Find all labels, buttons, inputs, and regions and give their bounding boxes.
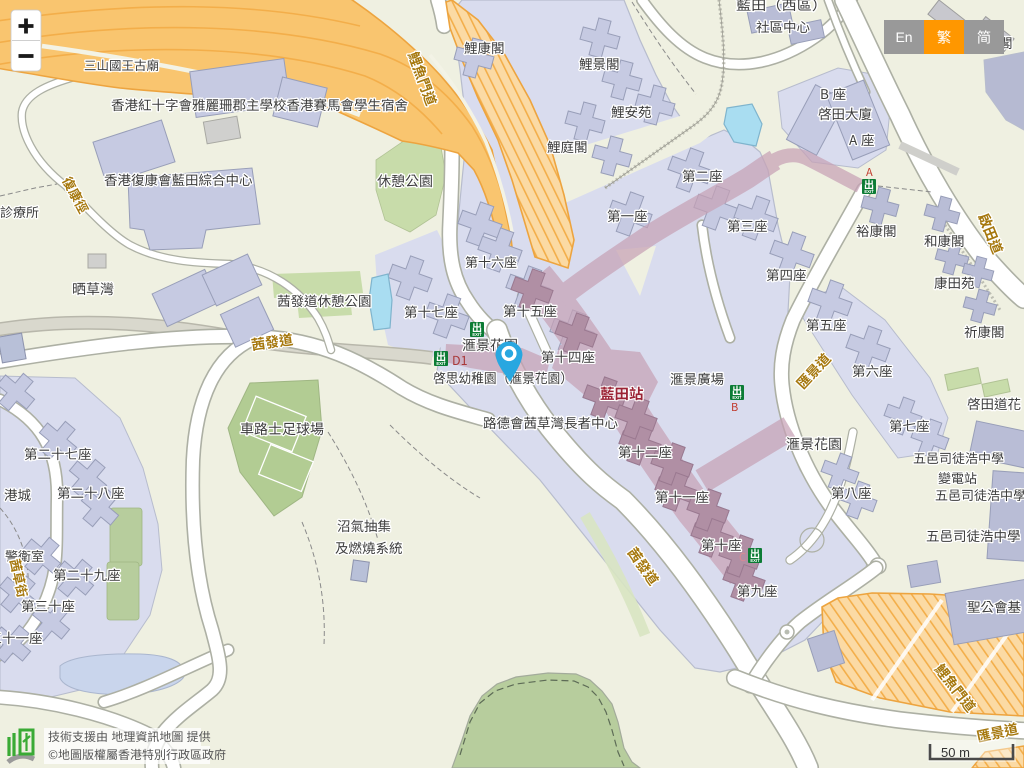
svg-text:藍田站: 藍田站 xyxy=(600,383,644,404)
svg-text:香港紅十字會雅麗珊郡主學校香港賽馬會學生宿舍: 香港紅十字會雅麗珊郡主學校香港賽馬會學生宿舍 xyxy=(111,94,408,114)
svg-text:第四座: 第四座 xyxy=(766,264,807,284)
svg-text:車路士足球場: 車路士足球場 xyxy=(240,419,324,439)
svg-text:和康閣: 和康閣 xyxy=(924,230,965,250)
svg-text:啓田道花: 啓田道花 xyxy=(967,393,1021,413)
svg-text:港城: 港城 xyxy=(4,484,31,504)
svg-text:EXIT: EXIT xyxy=(472,332,482,337)
svg-text:五邑司徒浩中學: 五邑司徒浩中學 xyxy=(935,485,1024,504)
svg-text:A 座: A 座 xyxy=(849,129,874,149)
svg-text:B 座: B 座 xyxy=(820,83,846,103)
svg-text:康田苑: 康田苑 xyxy=(934,272,975,292)
svg-text:第十一座: 第十一座 xyxy=(655,486,709,506)
svg-text:休憩公園: 休憩公園 xyxy=(377,171,433,191)
svg-text:©地圖版權屬香港特別行政區政府: ©地圖版權屬香港特別行政區政府 xyxy=(48,746,226,763)
svg-text:香港復康會藍田綜合中心: 香港復康會藍田綜合中心 xyxy=(104,169,253,189)
svg-text:第八座: 第八座 xyxy=(831,482,872,502)
svg-text:第一座: 第一座 xyxy=(607,205,648,225)
svg-text:診療所: 診療所 xyxy=(0,202,39,221)
svg-text:第十六座: 第十六座 xyxy=(465,252,517,271)
svg-text:藍田（西區）: 藍田（西區） xyxy=(736,0,827,14)
svg-text:A: A xyxy=(866,164,873,180)
svg-text:D1: D1 xyxy=(452,350,468,369)
svg-text:祈康閣: 祈康閣 xyxy=(964,321,1005,341)
svg-text:第二十八座: 第二十八座 xyxy=(57,482,125,502)
svg-text:三山國王古廟: 三山國王古廟 xyxy=(84,55,159,74)
svg-text:啓田大廈: 啓田大廈 xyxy=(818,103,872,123)
svg-text:鯉景閣: 鯉景閣 xyxy=(579,53,620,73)
svg-text:第十四座: 第十四座 xyxy=(541,346,595,366)
svg-text:五邑司徒浩中學: 五邑司徒浩中學 xyxy=(913,448,1004,467)
svg-text:繁: 繁 xyxy=(937,27,952,48)
svg-text:第六座: 第六座 xyxy=(852,360,893,380)
svg-text:裕康閣: 裕康閣 xyxy=(856,220,897,240)
svg-text:五邑司徒浩中學: 五邑司徒浩中學 xyxy=(926,525,1021,545)
svg-text:En: En xyxy=(895,29,912,45)
svg-text:第十七座: 第十七座 xyxy=(404,301,458,321)
svg-text:第二十七座: 第二十七座 xyxy=(24,443,92,463)
svg-text:鯉安苑: 鯉安苑 xyxy=(611,101,652,121)
svg-text:第九座: 第九座 xyxy=(737,580,778,600)
svg-text:鯉庭閣: 鯉庭閣 xyxy=(547,136,588,156)
svg-text:晒草灣: 晒草灣 xyxy=(72,279,114,299)
svg-text:第五座: 第五座 xyxy=(806,314,847,334)
svg-text:第十二座: 第十二座 xyxy=(618,441,672,461)
svg-text:第十五座: 第十五座 xyxy=(503,300,557,320)
svg-text:B: B xyxy=(731,399,738,415)
svg-text:茜發道休憩公園: 茜發道休憩公園 xyxy=(277,290,372,310)
svg-text:沼氣抽集: 沼氣抽集 xyxy=(337,515,391,535)
svg-text:及燃燒系統: 及燃燒系統 xyxy=(335,537,403,557)
svg-text:第二十九座: 第二十九座 xyxy=(53,564,121,584)
svg-text:EXIT: EXIT xyxy=(864,189,874,194)
svg-text:滙景廣場: 滙景廣場 xyxy=(670,368,724,388)
svg-text:EXIT: EXIT xyxy=(436,361,446,366)
svg-text:社區中心: 社區中心 xyxy=(756,16,810,36)
svg-text:滙景花園: 滙景花園 xyxy=(786,434,842,454)
svg-text:路德會茜草灣長者中心: 路德會茜草灣長者中心 xyxy=(483,412,618,432)
svg-text:50 m: 50 m xyxy=(941,745,970,760)
svg-text:第十座: 第十座 xyxy=(701,534,742,554)
svg-text:第三十一座: 第三十一座 xyxy=(0,627,43,647)
svg-text:C: C xyxy=(739,549,746,565)
svg-text:EXIT: EXIT xyxy=(750,558,760,563)
svg-text:技術支援由 地理資訊地圖 提供: 技術支援由 地理資訊地圖 提供 xyxy=(48,728,211,745)
svg-text:鯉康閣: 鯉康閣 xyxy=(464,37,505,57)
svg-text:第七座: 第七座 xyxy=(889,415,930,435)
svg-text:第三十座: 第三十座 xyxy=(21,595,75,615)
svg-text:聖公會基: 聖公會基 xyxy=(967,596,1021,616)
svg-text:第三座: 第三座 xyxy=(727,215,768,235)
svg-text:简: 简 xyxy=(977,27,992,48)
svg-text:第二座: 第二座 xyxy=(682,165,723,185)
